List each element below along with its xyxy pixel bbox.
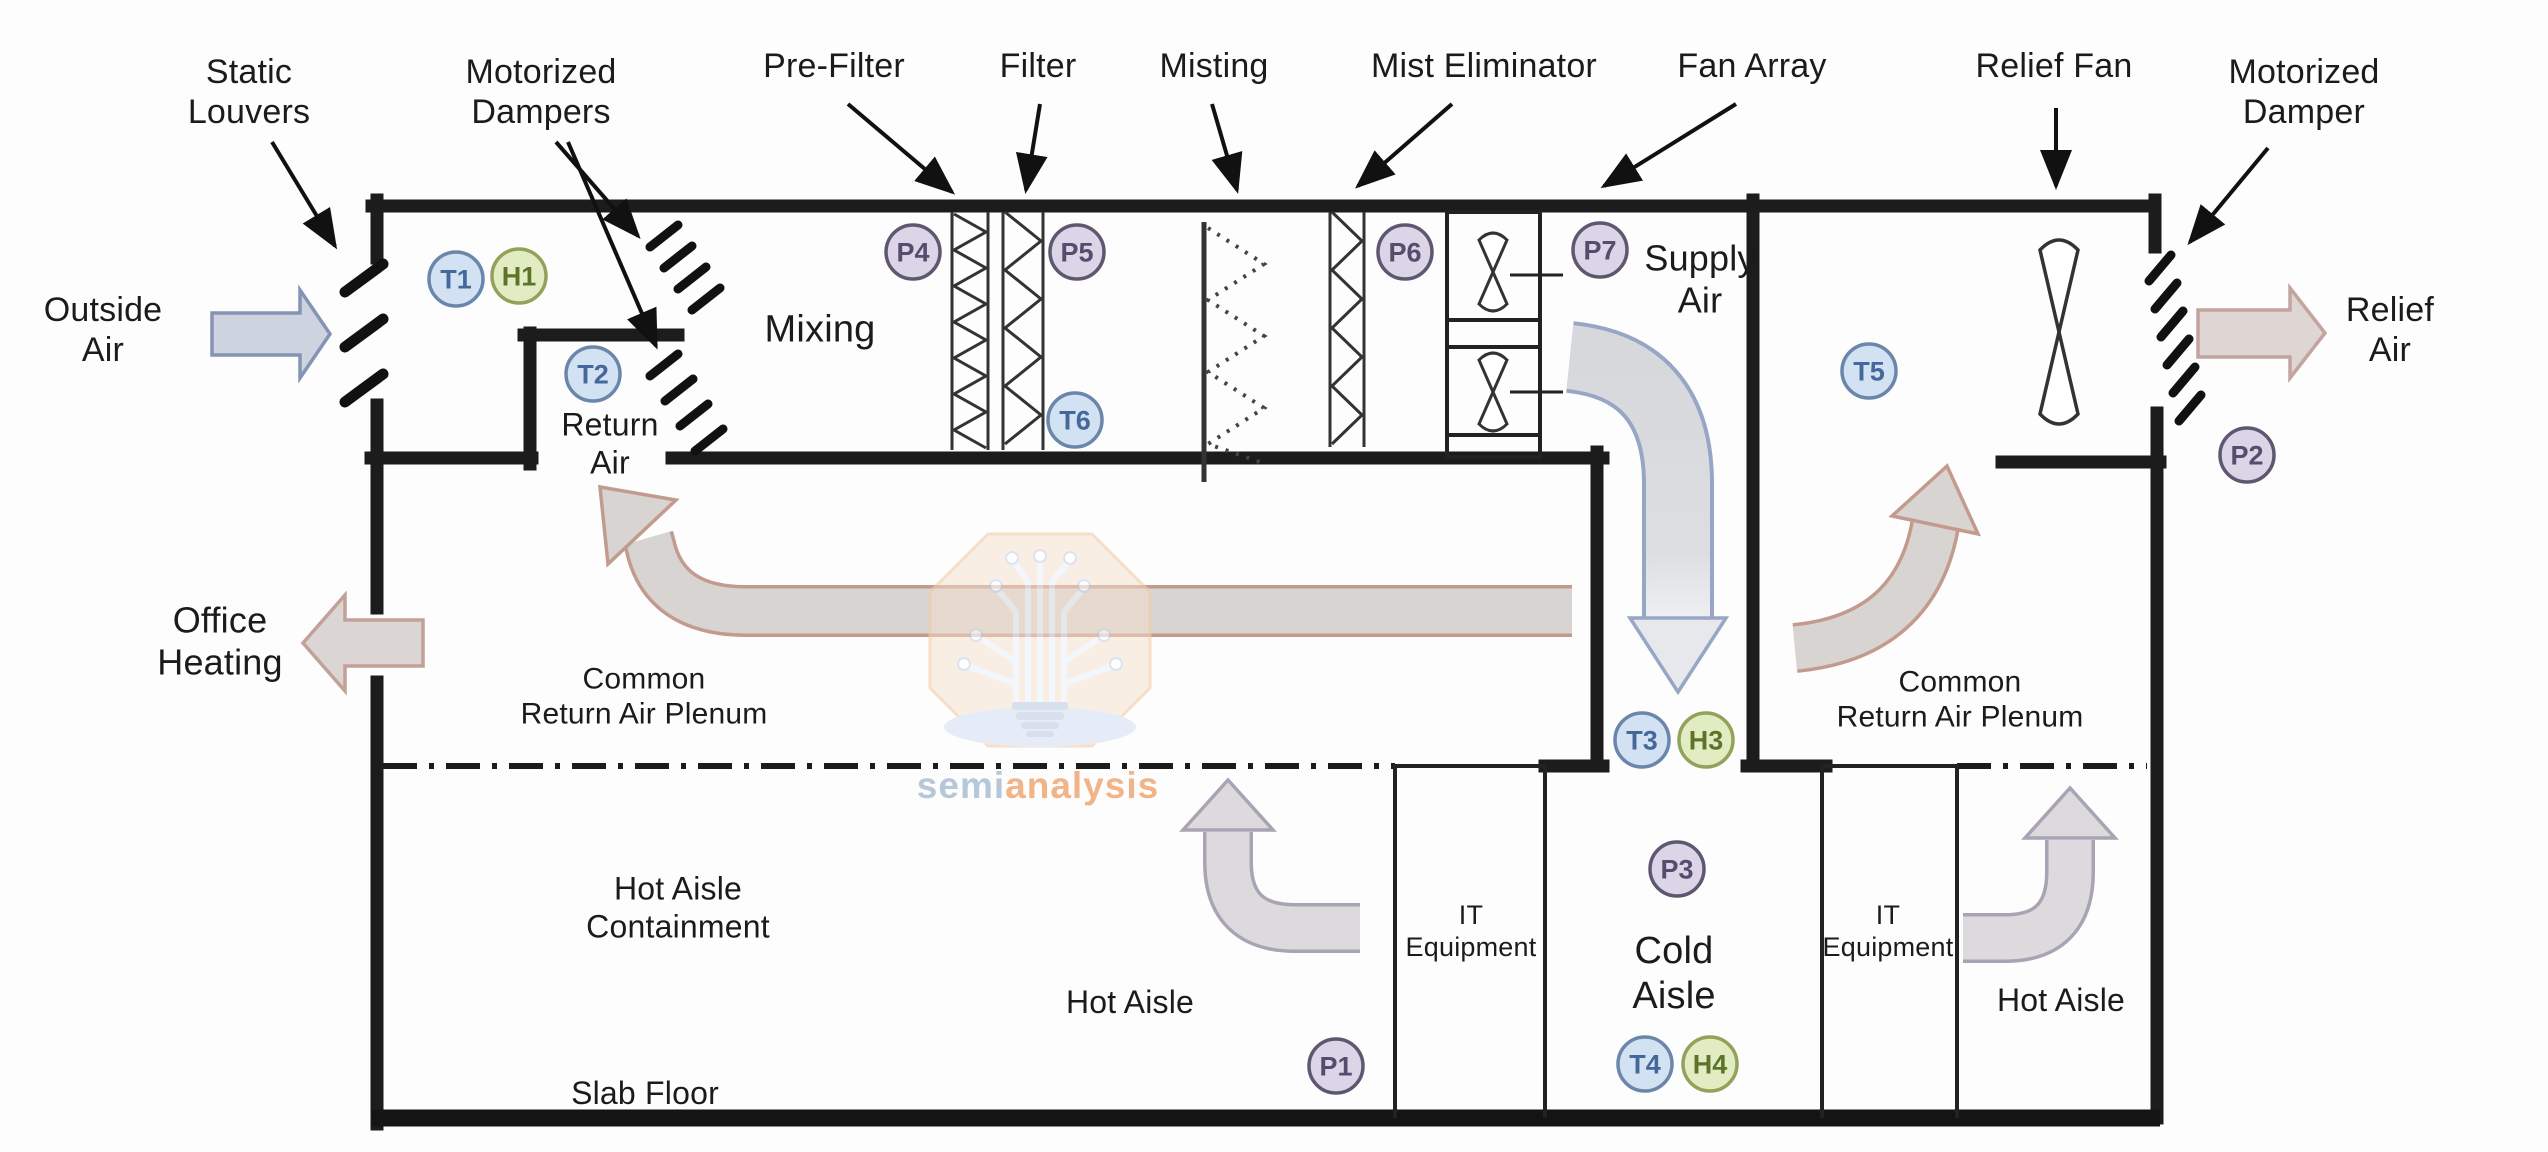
hot-aisle-arrow-left: [1183, 780, 1360, 928]
sensor-T6: T6: [1048, 393, 1102, 447]
pointer-filter: [1026, 104, 1040, 190]
label-hot-aisle-left: Hot Aisle: [1066, 984, 1194, 1022]
sensor-H3: H3: [1679, 713, 1733, 767]
motorized-damper-return-icon: [650, 354, 723, 451]
relief-air-arrow: [2198, 288, 2325, 378]
svg-text:P5: P5: [1060, 238, 1093, 268]
label-it-equipment-left: IT Equipment: [1406, 900, 1537, 964]
sensor-P2: P2: [2220, 428, 2274, 482]
svg-text:T2: T2: [577, 360, 609, 390]
svg-text:T6: T6: [1059, 406, 1091, 436]
sensor-T3: T3: [1615, 713, 1669, 767]
sensor-T1: T1: [429, 252, 483, 306]
relief-fan-icon: [2040, 240, 2078, 424]
watermark-semi: semi: [917, 765, 1005, 806]
label-relief-air: Relief Air: [2346, 290, 2434, 370]
label-fan-array: Fan Array: [1677, 46, 1826, 86]
motorized-damper-relief-icon: [2149, 255, 2201, 421]
pointer-motorized-damper-2: [568, 142, 656, 346]
label-mist-eliminator: Mist Eliminator: [1371, 46, 1597, 86]
label-static-louvers: Static Louvers: [188, 52, 310, 132]
label-pre-filter: Pre-Filter: [763, 46, 905, 86]
label-return-air: Return Air: [561, 406, 658, 482]
svg-text:H1: H1: [502, 262, 537, 292]
label-common-return-air-plenum-left: Common Return Air Plenum: [521, 662, 768, 733]
label-outside-air: Outside Air: [44, 290, 163, 370]
watermark-badge: [930, 534, 1150, 747]
svg-text:H4: H4: [1693, 1050, 1728, 1080]
relief-return-arrow: [1795, 466, 1978, 648]
hot-aisle-arrow-right: [1963, 788, 2115, 938]
mist-eliminator-icon: [1330, 212, 1364, 447]
office-heating-arrow: [303, 595, 423, 691]
misting-icon: [1204, 222, 1264, 482]
pointer-pre-filter: [848, 104, 952, 192]
label-pointers: [272, 104, 2268, 346]
watermark-analysis: analysis: [1005, 765, 1159, 806]
sensor-P6: P6: [1378, 225, 1432, 279]
pointer-mist-eliminator: [1358, 104, 1452, 186]
static-louvers-icon: [345, 264, 383, 402]
sensor-P7: P7: [1573, 223, 1627, 277]
label-office-heating: Office Heating: [157, 600, 282, 685]
sensor-P1: P1: [1309, 1039, 1363, 1093]
pointer-fan-array: [1604, 104, 1736, 186]
label-common-return-air-plenum-right: Common Return Air Plenum: [1837, 665, 2084, 736]
svg-text:P3: P3: [1660, 855, 1693, 885]
svg-text:H3: H3: [1689, 726, 1724, 756]
svg-text:P1: P1: [1319, 1052, 1352, 1082]
label-motorized-dampers: Motorized Dampers: [465, 52, 616, 132]
filter-icon: [1003, 212, 1043, 450]
label-relief-fan: Relief Fan: [1976, 46, 2133, 86]
watermark-wordmark: semianalysis: [917, 765, 1159, 807]
pointer-misting: [1212, 104, 1237, 190]
pre-filter-icon: [952, 212, 988, 450]
label-supply-air: Supply Air: [1644, 238, 1755, 323]
svg-text:P7: P7: [1583, 236, 1616, 266]
svg-text:T1: T1: [440, 265, 472, 295]
pointer-motorized-damper-right: [2190, 148, 2268, 242]
svg-text:T4: T4: [1629, 1050, 1661, 1080]
sensor-P4: P4: [886, 225, 940, 279]
fan-blade-icon: [1479, 233, 1507, 431]
sensor-T2: T2: [566, 347, 620, 401]
label-it-equipment-right: IT Equipment: [1823, 900, 1954, 964]
sensor-P5: P5: [1050, 225, 1104, 279]
label-mixing: Mixing: [764, 308, 875, 353]
fan-array-icon: [1447, 212, 1563, 457]
outside-air-arrow: [212, 290, 330, 378]
label-hot-aisle-right: Hot Aisle: [1997, 982, 2125, 1020]
label-misting: Misting: [1159, 46, 1268, 86]
svg-text:T3: T3: [1626, 726, 1658, 756]
svg-text:P6: P6: [1388, 238, 1421, 268]
motorized-damper-outside-icon: [650, 225, 720, 310]
sensor-T4: T4: [1618, 1037, 1672, 1091]
pointer-motorized-damper-1: [556, 142, 638, 236]
pointer-static-louvers: [272, 142, 335, 246]
label-slab-floor: Slab Floor: [571, 1075, 719, 1113]
hvac-diagram: T1H1T2P4P5T6P6P7T5P2T3H3P3T4H4P1: [0, 0, 2548, 1152]
sensor-H1: H1: [492, 249, 546, 303]
label-filter: Filter: [1000, 46, 1077, 86]
label-cold-aisle: Cold Aisle: [1632, 929, 1715, 1019]
sensor-T5: T5: [1842, 344, 1896, 398]
svg-text:T5: T5: [1853, 357, 1885, 387]
sensor-H4: H4: [1683, 1037, 1737, 1091]
svg-text:P4: P4: [896, 238, 929, 268]
svg-text:P2: P2: [2230, 441, 2263, 471]
label-motorized-damper: Motorized Damper: [2228, 52, 2379, 132]
diagram-linework: T1H1T2P4P5T6P6P7T5P2T3H3P3T4H4P1: [0, 0, 2548, 1152]
sensor-P3: P3: [1650, 842, 1704, 896]
label-hot-aisle-containment: Hot Aisle Containment: [586, 870, 770, 946]
